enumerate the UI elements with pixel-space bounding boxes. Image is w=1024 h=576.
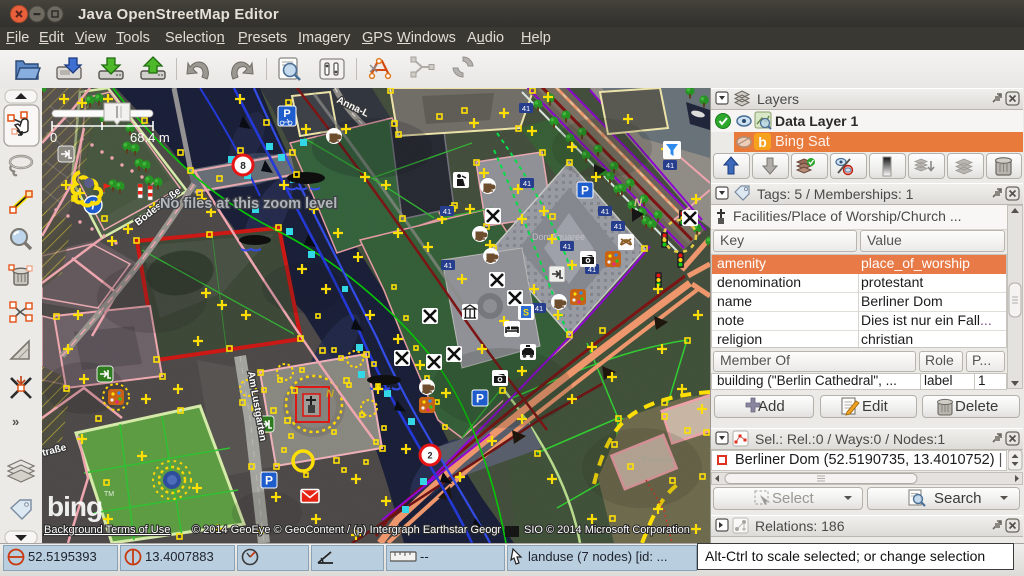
svg-text:»: » — [12, 414, 19, 429]
svg-text:b: b — [758, 134, 767, 150]
